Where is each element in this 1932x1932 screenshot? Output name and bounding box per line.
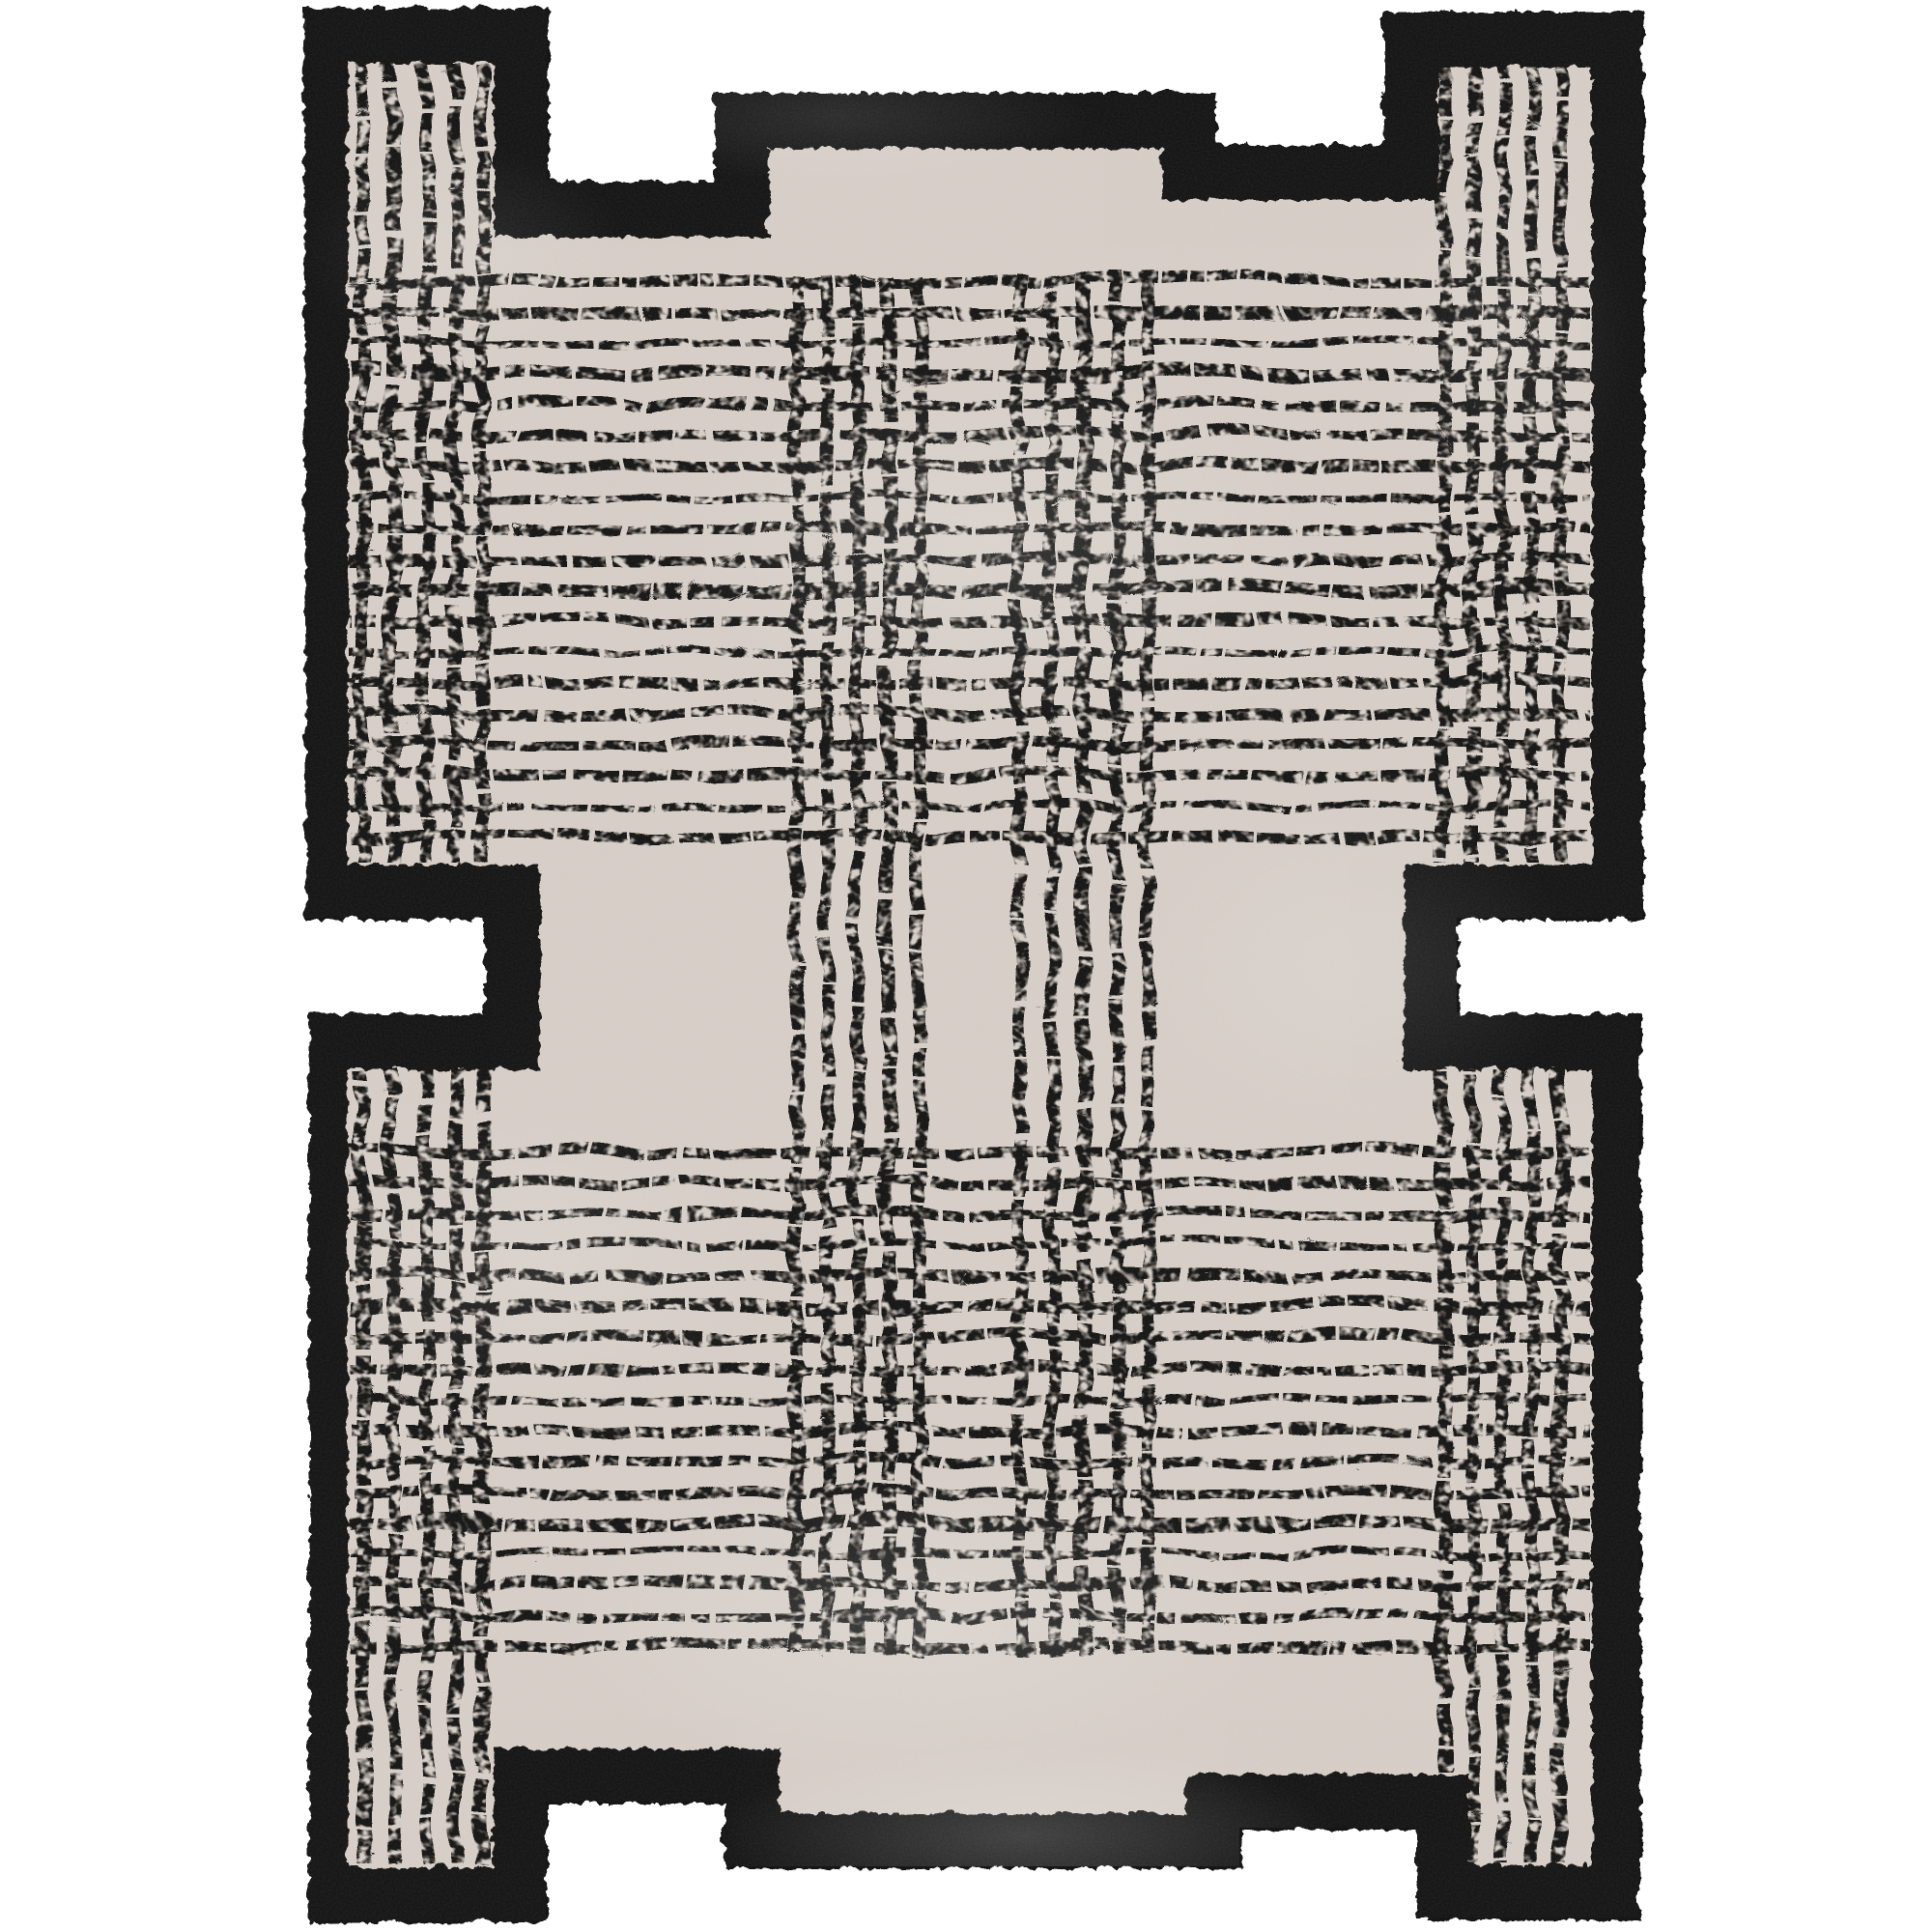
rug-photo [0,0,1932,1932]
rug [0,0,1932,1932]
wool-grain-texture [0,0,1932,1932]
rug-product-photo [0,0,1932,1932]
